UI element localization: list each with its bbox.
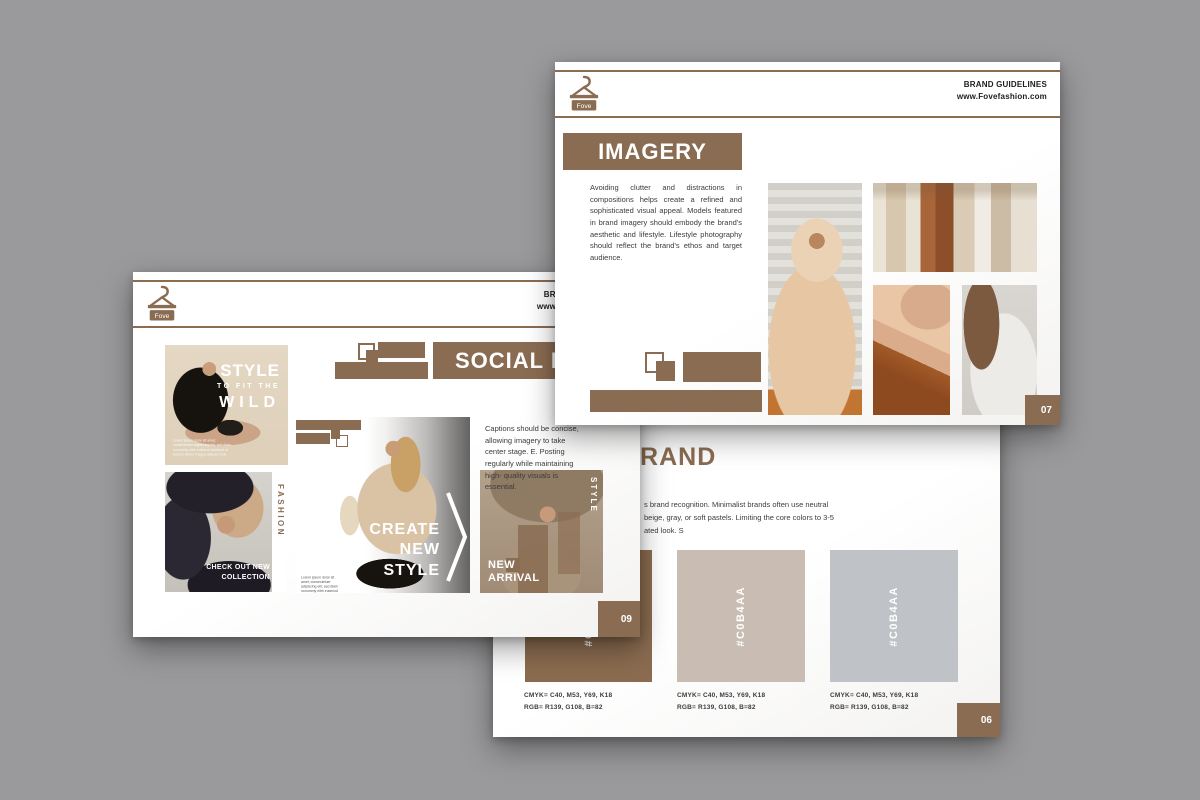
deco-rectangle <box>296 433 330 444</box>
color-swatch-taupe: #C0B4AA <box>677 550 805 682</box>
deco-square-outline <box>336 435 348 447</box>
cmyk-value: CMYK= C40, M53, Y69, K18 <box>677 690 765 702</box>
page-number-badge: 09 <box>598 601 640 637</box>
photo-hijab-model <box>768 183 862 415</box>
deco-square <box>656 361 675 381</box>
chevron-right-icon <box>446 491 468 583</box>
swatch-values-2: CMYK= C40, M53, Y69, K18 RGB= R139, G108… <box>677 690 765 713</box>
post-vertical-label: FASHION <box>276 484 285 537</box>
label-line: NEW <box>488 559 540 572</box>
page-number: 06 <box>981 715 992 726</box>
post-line: CREATE <box>369 520 440 540</box>
chevron-right-icon <box>273 565 281 583</box>
fove-hanger-logo-icon: Fove <box>567 73 601 113</box>
imagery-paragraph: Avoiding clutter and distractions in com… <box>590 182 742 263</box>
header-tagline: BRAND GUIDELINES www.Fovefashion.com <box>957 79 1047 104</box>
header-tagline-line1: BRAND GUIDELINES <box>957 79 1047 91</box>
header-rule-top <box>555 70 1060 72</box>
post-line: STYLE <box>369 561 440 581</box>
page-number-badge: 07 <box>1025 395 1060 425</box>
brand-body-line-2: beige, gray, or soft pastels. Limiting t… <box>644 513 834 522</box>
logo-wordmark: Fove <box>577 103 592 110</box>
swatch-hex-label: #C0B4AA <box>677 550 805 682</box>
post-overlay-text: STYLE TO FIT THE WILD <box>217 361 280 412</box>
cmyk-value: CMYK= C40, M53, Y69, K18 <box>524 690 612 702</box>
social-post-style-wild: STYLE TO FIT THE WILD Lorem ipsum dolor … <box>165 345 288 465</box>
page-number: 07 <box>1041 405 1052 416</box>
page-number: 09 <box>621 614 632 625</box>
post-fine-print: Lorem ipsum dolor sit amet, consectetuer… <box>173 438 231 457</box>
color-swatch-gray: #C0B4AA <box>830 550 958 682</box>
deco-rectangle <box>683 352 761 382</box>
page-imagery: Fove BRAND GUIDELINES www.Fovefashion.co… <box>555 62 1060 425</box>
social-post-new-collection: FASHION CHECK OUT NEW COLLECTION <box>165 472 286 592</box>
post-line: WILD <box>217 394 280 412</box>
page-title-imagery: IMAGERY <box>563 133 742 170</box>
post-line: TO FIT THE <box>217 383 280 390</box>
brand-body-line-1: s brand recognition. Minimalist brands o… <box>644 500 828 509</box>
post-line: NEW <box>369 540 440 560</box>
deco-bar <box>335 362 428 379</box>
cta-line: COLLECTION <box>206 573 270 582</box>
post-overlay-text: CREATE NEW STYLE <box>369 520 440 581</box>
cta-line: CHECK OUT NEW <box>206 563 270 572</box>
logo-wordmark: Fove <box>155 313 170 320</box>
social-post-create-new-style: CREATE NEW STYLE Lorem ipsum dolor sit a… <box>296 417 470 593</box>
photo-jewelry-detail <box>873 285 950 415</box>
fove-hanger-logo-icon: Fove <box>145 283 179 323</box>
photo-clothes-rack <box>873 183 1037 272</box>
cmyk-value: CMYK= C40, M53, Y69, K18 <box>830 690 918 702</box>
rgb-value: RGB= R139, G108, B=82 <box>830 702 918 714</box>
header-rule-bottom <box>555 116 1060 118</box>
header-tagline-line2: www.Fovefashion.com <box>957 91 1047 103</box>
rgb-value: RGB= R139, G108, B=82 <box>677 702 765 714</box>
page-number-badge: 06 <box>957 703 1000 737</box>
label-line: ARRIVAL <box>488 572 540 585</box>
deco-square <box>366 350 378 362</box>
post-fine-print: Lorem ipsum dolor sit amet, consectetuer… <box>301 575 344 593</box>
deco-rectangle <box>378 342 425 358</box>
page-title-text: IMAGERY <box>598 139 707 165</box>
rgb-value: RGB= R139, G108, B=82 <box>524 702 612 714</box>
deco-bar <box>590 390 762 412</box>
overlay-rectangle <box>558 512 580 574</box>
swatch-hex-label: #C0B4AA <box>830 550 958 682</box>
post-cta-text: CHECK OUT NEW COLLECTION <box>206 563 270 582</box>
post-line: STYLE <box>217 361 280 381</box>
brand-body-line-3: ated look. S <box>644 526 684 535</box>
deco-bar <box>296 420 361 430</box>
post-label: NEW ARRIVAL <box>488 559 540 585</box>
swatch-values-1: CMYK= C40, M53, Y69, K18 RGB= R139, G108… <box>524 690 612 713</box>
post-vertical-label: STYLE <box>589 477 598 513</box>
social-caption-paragraph: Captions should be concise, allowing ima… <box>485 423 585 493</box>
swatch-values-3: CMYK= C40, M53, Y69, K18 RGB= R139, G108… <box>830 690 918 713</box>
